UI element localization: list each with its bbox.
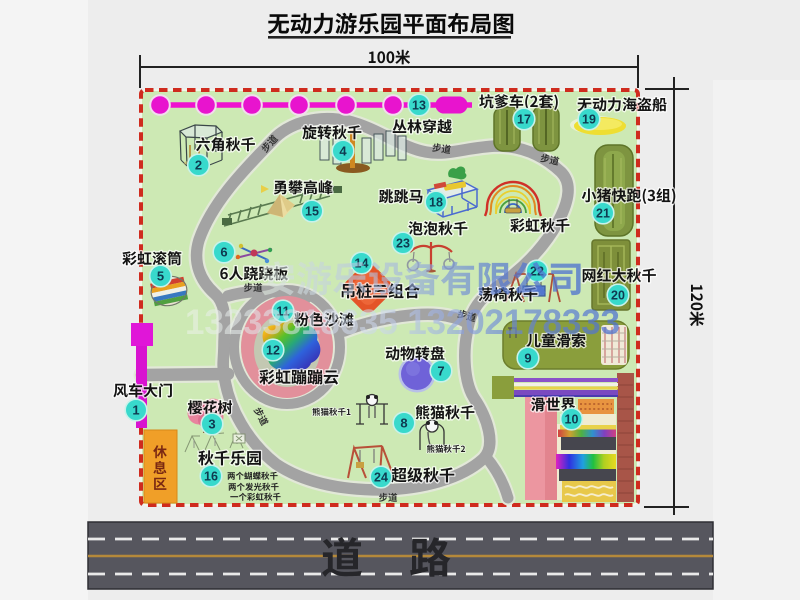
svg-text:13: 13 — [412, 99, 426, 113]
svg-text:6: 6 — [220, 245, 227, 260]
svg-text:3: 3 — [208, 417, 215, 432]
svg-text:23: 23 — [396, 237, 410, 251]
svg-text:8: 8 — [400, 416, 407, 431]
svg-text:1: 1 — [132, 403, 139, 418]
svg-text:21: 21 — [596, 207, 610, 221]
svg-text:17: 17 — [517, 113, 531, 127]
svg-text:10: 10 — [565, 413, 579, 427]
svg-text:13233818635 13202178333: 13233818635 13202178333 — [185, 303, 620, 342]
svg-text:7: 7 — [437, 364, 444, 379]
svg-text:19: 19 — [582, 113, 596, 127]
svg-text:15: 15 — [305, 205, 319, 219]
svg-text:2: 2 — [195, 158, 202, 173]
svg-text:9: 9 — [524, 351, 531, 366]
svg-text:16: 16 — [204, 470, 218, 484]
svg-text:18: 18 — [429, 196, 443, 210]
svg-text:12: 12 — [266, 344, 280, 358]
svg-text:20: 20 — [611, 289, 625, 303]
svg-text:4: 4 — [339, 144, 347, 159]
svg-text:5: 5 — [157, 269, 164, 284]
svg-text:24: 24 — [374, 471, 388, 485]
